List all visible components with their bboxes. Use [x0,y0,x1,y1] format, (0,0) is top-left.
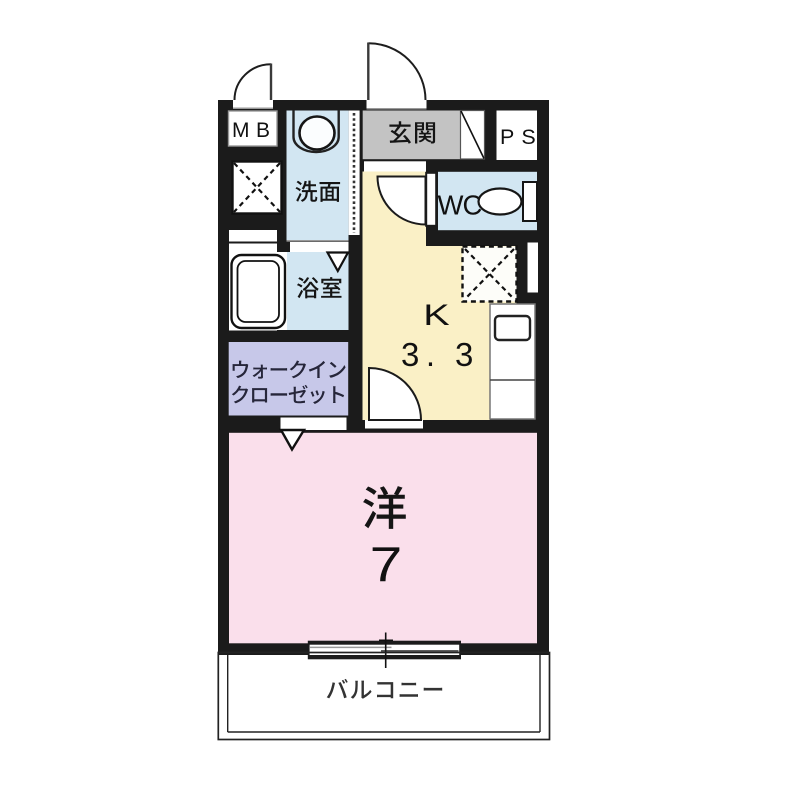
svg-text:MB: MB [232,119,277,142]
svg-text:K: K [423,299,450,332]
svg-text:7: 7 [370,538,403,592]
svg-text:WC: WC [438,190,482,221]
svg-text:PS: PS [500,125,543,149]
